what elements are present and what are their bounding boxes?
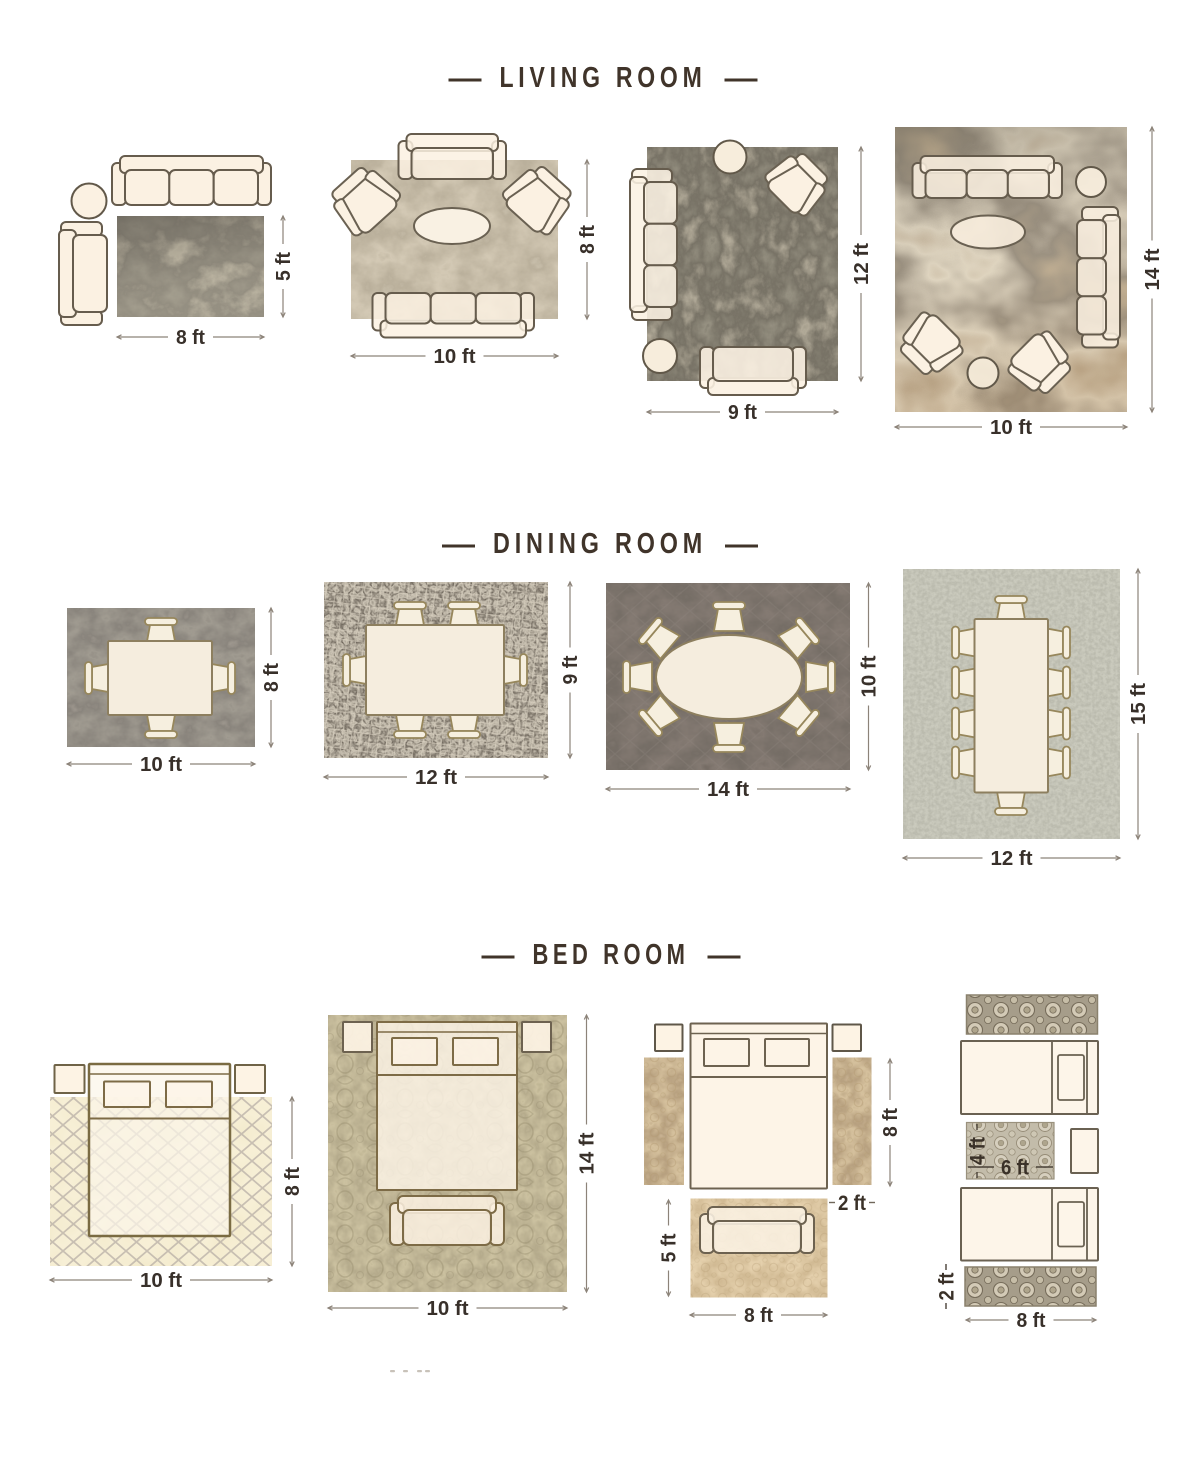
svg-text:14 ft: 14 ft: [707, 779, 749, 801]
svg-text:9 ft: 9 ft: [560, 655, 582, 684]
svg-text:8 ft: 8 ft: [261, 663, 283, 692]
svg-text:2 ft: 2 ft: [838, 1192, 866, 1215]
svg-text:DINING ROOM: DINING ROOM: [493, 528, 707, 560]
svg-text:10 ft: 10 ft: [140, 1270, 182, 1292]
svg-text:8 ft: 8 ft: [577, 225, 599, 254]
svg-text:2 ft: 2 ft: [936, 1272, 959, 1300]
svg-text:12 ft: 12 ft: [991, 848, 1033, 870]
svg-text:14 ft: 14 ft: [1142, 248, 1164, 290]
svg-text:12 ft: 12 ft: [851, 243, 873, 285]
svg-text:4 ft: 4 ft: [967, 1137, 990, 1165]
svg-text:14 ft: 14 ft: [577, 1132, 599, 1174]
svg-text:6 ft: 6 ft: [1001, 1157, 1029, 1180]
svg-text:9 ft: 9 ft: [728, 402, 757, 424]
svg-text:10 ft: 10 ft: [434, 346, 476, 368]
svg-text:10 ft: 10 ft: [859, 655, 881, 697]
svg-text:12 ft: 12 ft: [415, 767, 457, 789]
svg-text:8 ft: 8 ft: [1017, 1310, 1046, 1332]
svg-text:5 ft: 5 ft: [273, 252, 295, 281]
svg-text:8 ft: 8 ft: [744, 1305, 773, 1327]
svg-text:LIVING ROOM: LIVING ROOM: [500, 62, 707, 94]
svg-text:10 ft: 10 ft: [990, 417, 1032, 439]
svg-text:BED ROOM: BED ROOM: [533, 939, 690, 971]
svg-text:5 ft: 5 ft: [659, 1233, 681, 1262]
svg-text:8 ft: 8 ft: [880, 1108, 902, 1137]
svg-text:10 ft: 10 ft: [140, 754, 182, 776]
svg-text:8 ft: 8 ft: [282, 1167, 304, 1196]
svg-text:15 ft: 15 ft: [1128, 683, 1150, 725]
svg-text:8 ft: 8 ft: [176, 327, 205, 349]
svg-text:10 ft: 10 ft: [427, 1298, 469, 1320]
